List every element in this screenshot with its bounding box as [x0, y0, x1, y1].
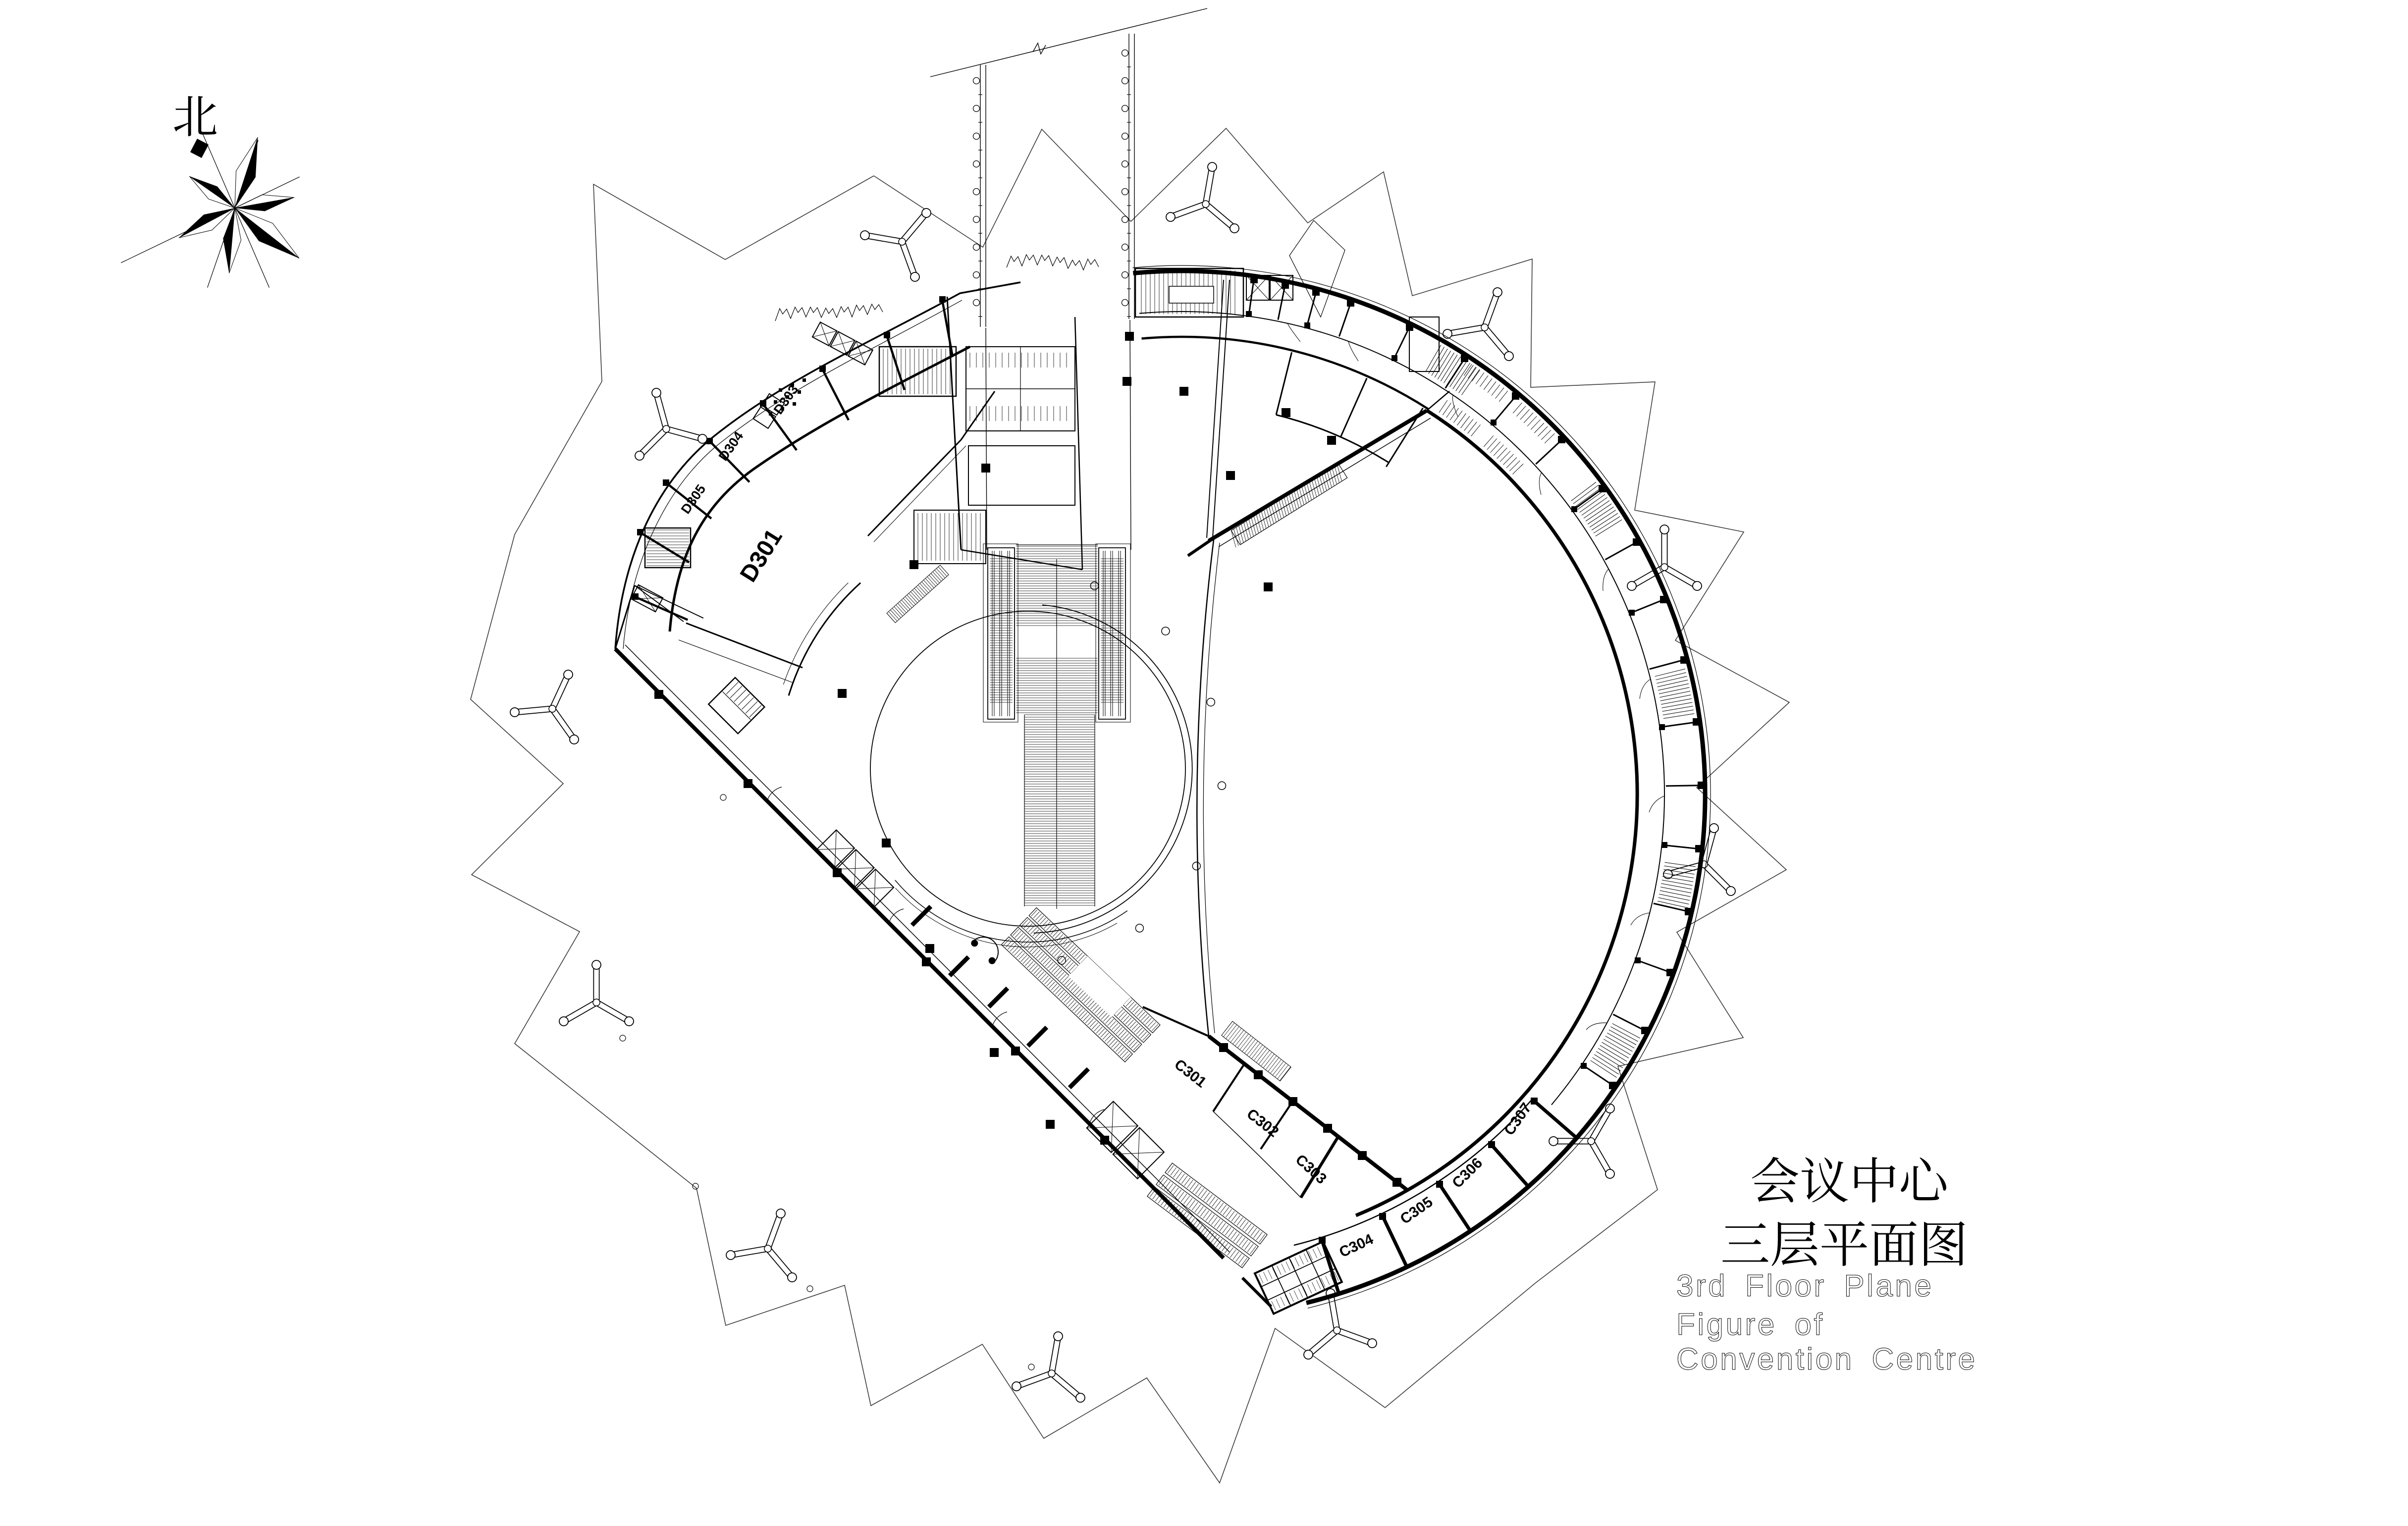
svg-text:Convention Centre: Convention Centre [1676, 1342, 1977, 1376]
svg-text:3rd Floor Plane: 3rd Floor Plane [1676, 1269, 1933, 1303]
svg-text:Figure of: Figure of [1676, 1308, 1824, 1342]
